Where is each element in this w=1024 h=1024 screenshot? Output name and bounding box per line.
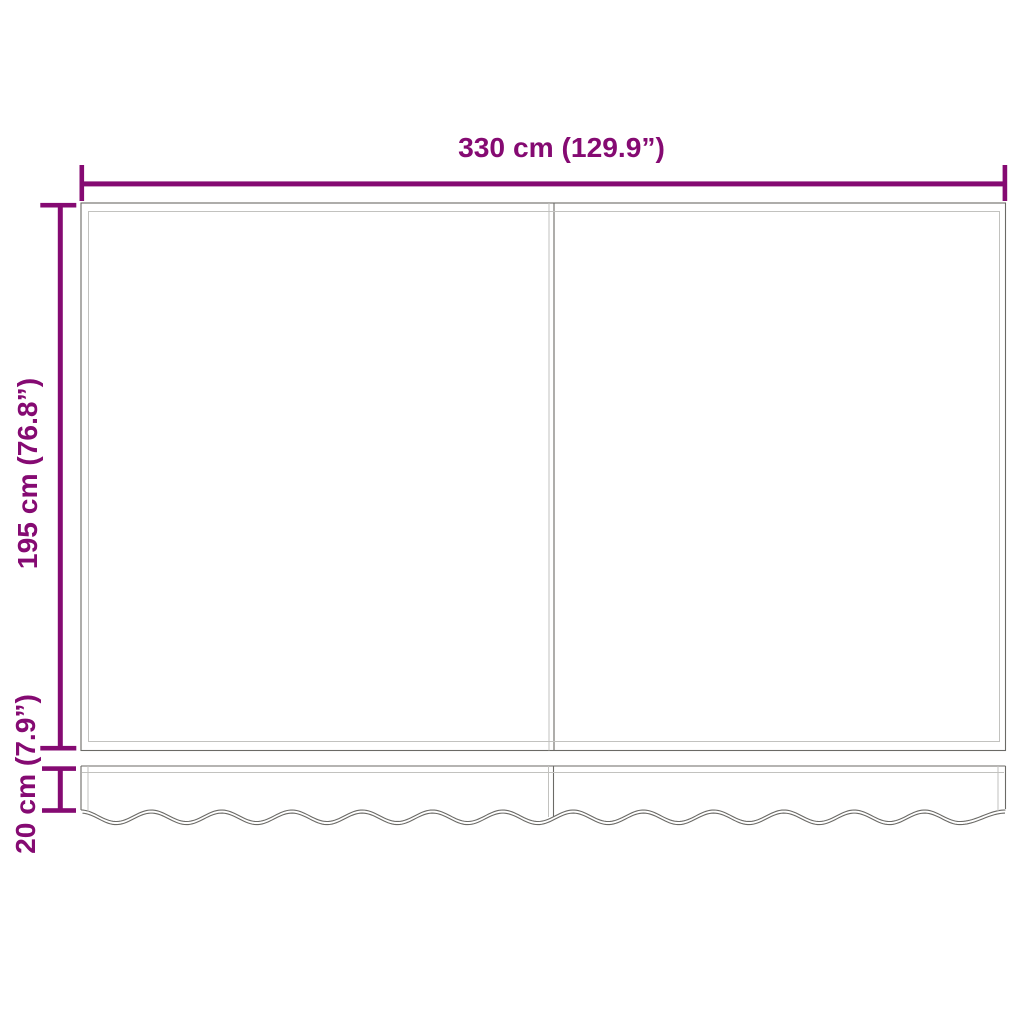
- svg-text:20 cm (7.9”): 20 cm (7.9”): [9, 694, 41, 854]
- svg-text:330 cm (129.9”): 330 cm (129.9”): [458, 131, 665, 163]
- svg-text:195 cm (76.8”): 195 cm (76.8”): [11, 378, 43, 569]
